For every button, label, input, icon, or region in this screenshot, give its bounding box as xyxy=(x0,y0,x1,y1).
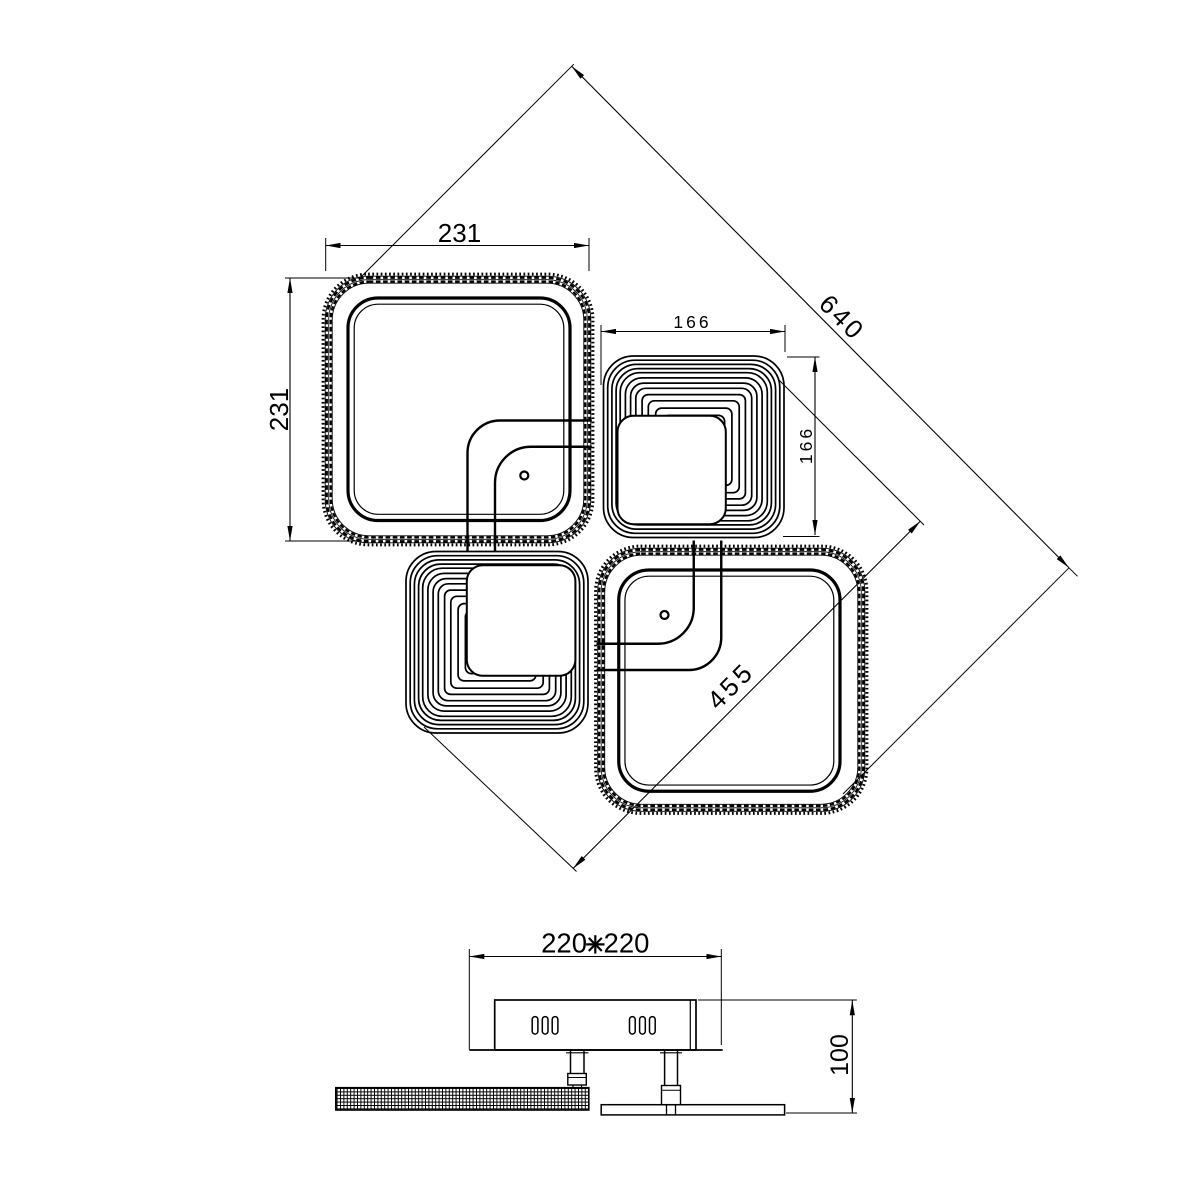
svg-text:231: 231 xyxy=(264,388,294,431)
svg-text:220: 220 xyxy=(604,928,650,959)
svg-text:166: 166 xyxy=(673,312,711,332)
svg-text:220: 220 xyxy=(541,928,587,959)
svg-text:100: 100 xyxy=(826,1034,854,1076)
svg-text:231: 231 xyxy=(438,218,481,248)
svg-text:166: 166 xyxy=(796,426,816,464)
